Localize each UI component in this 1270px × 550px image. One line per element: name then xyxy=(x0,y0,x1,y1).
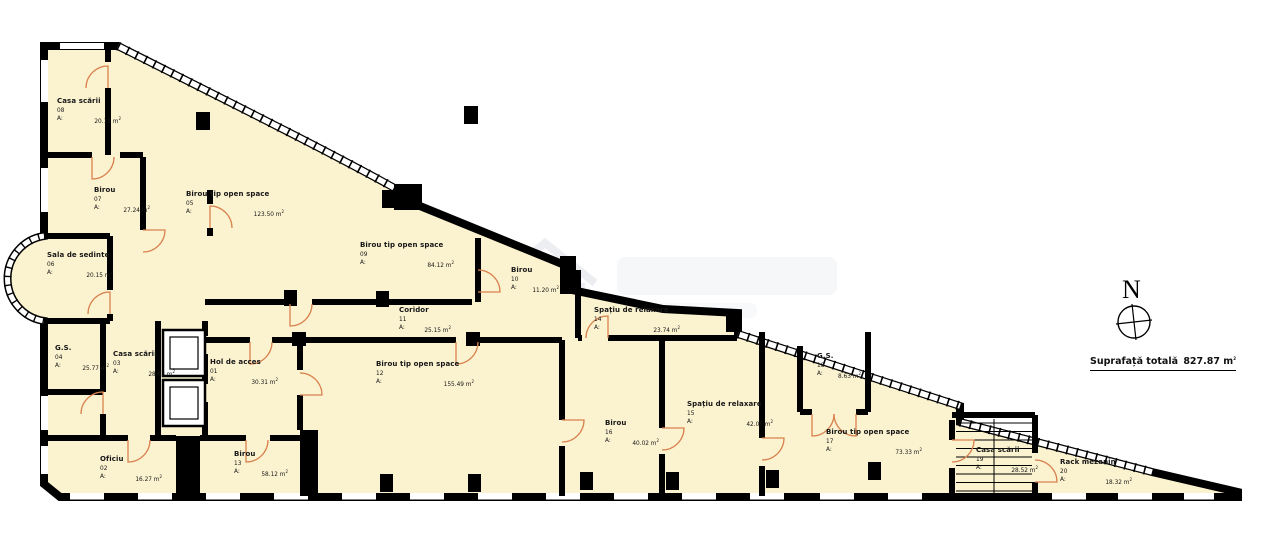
compass-cross xyxy=(1116,304,1152,340)
total-area-value: 827.87 m2 xyxy=(1183,356,1236,367)
floor-plan-page: N Hol de acces01A:30.31 m2Oficiu02A:16.2… xyxy=(0,0,1270,550)
north-arrow: N xyxy=(1116,275,1152,340)
floor-plan-drawing: N xyxy=(0,0,1270,550)
total-area: Suprafață totală 827.87 m2 xyxy=(1090,356,1236,371)
north-label: N xyxy=(1122,275,1141,304)
total-area-label: Suprafață totală xyxy=(1090,356,1178,367)
